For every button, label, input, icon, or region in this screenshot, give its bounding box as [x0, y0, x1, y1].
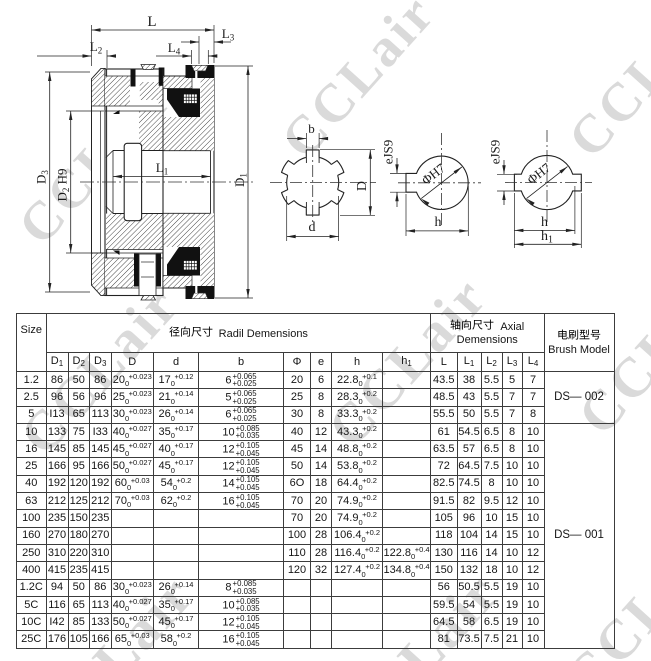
svg-text:eJS9: eJS9 — [488, 140, 503, 165]
svg-text:D1: D1 — [232, 173, 249, 187]
svg-text:D3: D3 — [34, 170, 51, 184]
svg-text:h: h — [435, 215, 442, 230]
svg-text:L4: L4 — [168, 40, 181, 57]
svg-text:h: h — [541, 215, 548, 230]
svg-text:L1: L1 — [156, 160, 168, 177]
svg-text:L2: L2 — [90, 39, 102, 56]
svg-text:d: d — [309, 220, 316, 235]
svg-text:b: b — [308, 121, 315, 136]
svg-text:D: D — [355, 181, 370, 191]
svg-text:L3: L3 — [222, 26, 235, 43]
svg-text:L: L — [147, 14, 156, 30]
svg-text:D2 H9: D2 H9 — [55, 168, 72, 201]
svg-text:eJS9: eJS9 — [381, 140, 396, 165]
svg-text:h1: h1 — [541, 229, 553, 246]
